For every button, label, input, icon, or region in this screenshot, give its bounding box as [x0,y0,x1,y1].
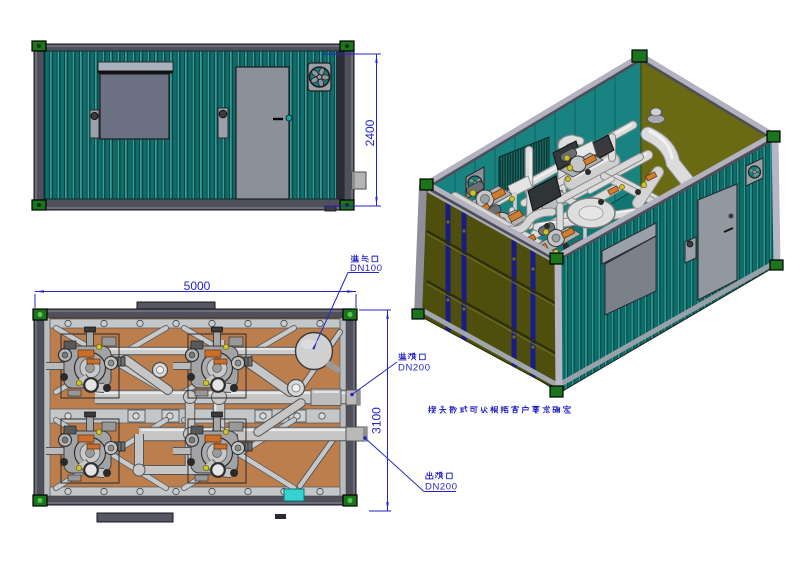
svg-text:2400: 2400 [363,119,377,146]
svg-text:DN200: DN200 [398,363,431,374]
svg-text:DN200: DN200 [425,482,458,493]
svg-text:3100: 3100 [370,407,384,434]
svg-text:5000: 5000 [184,279,211,293]
